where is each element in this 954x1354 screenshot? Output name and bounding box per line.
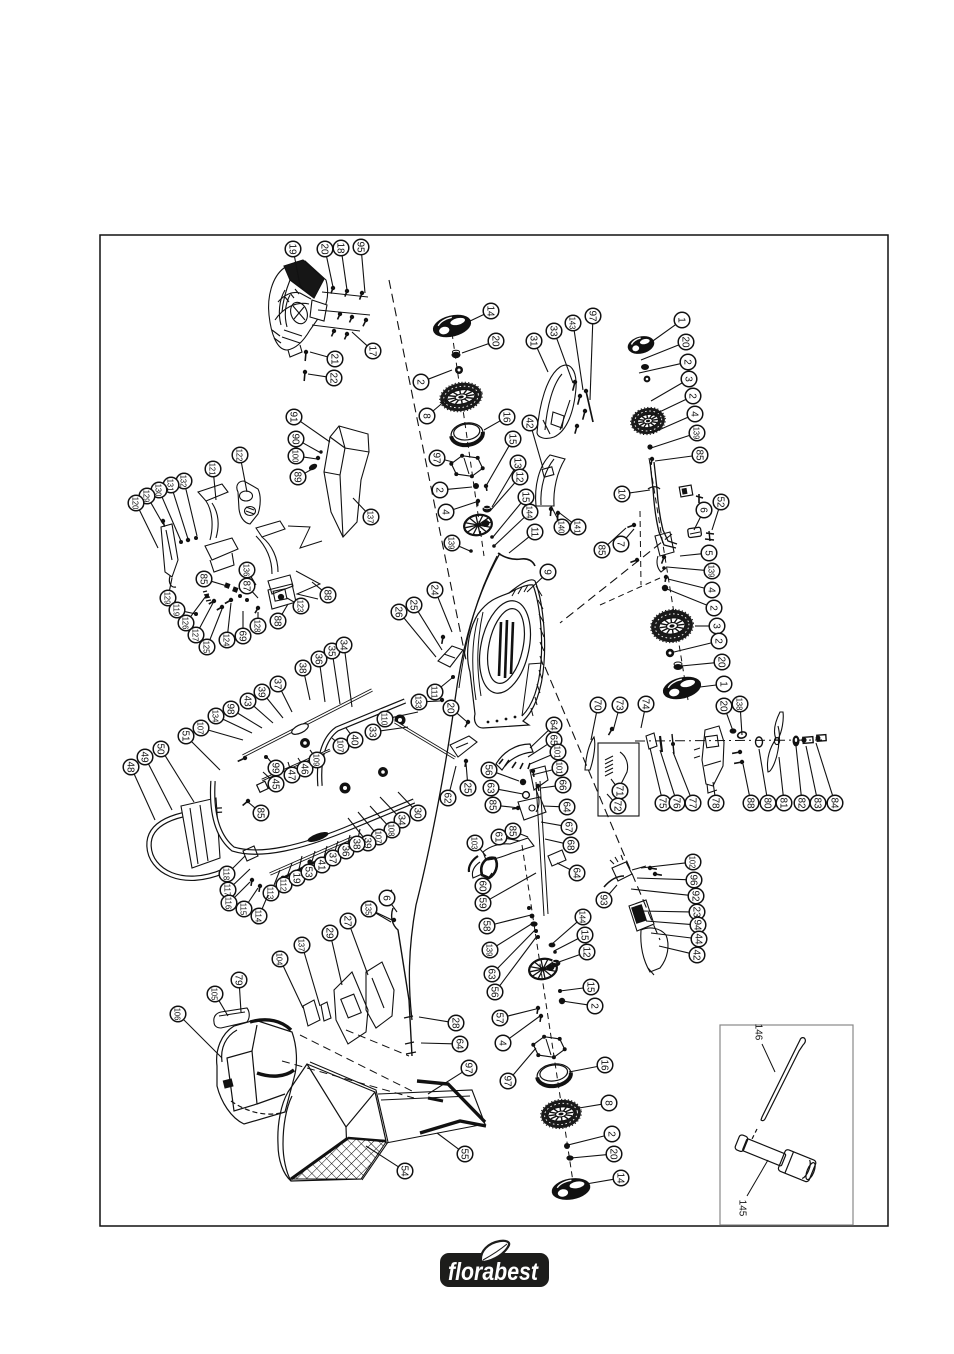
svg-text:139: 139: [446, 537, 456, 550]
svg-text:33: 33: [366, 726, 377, 738]
svg-text:78: 78: [709, 797, 720, 809]
svg-text:2: 2: [712, 638, 723, 644]
svg-text:14: 14: [484, 305, 495, 317]
svg-text:77: 77: [686, 797, 697, 809]
svg-text:12: 12: [580, 946, 591, 958]
svg-text:16: 16: [598, 1059, 609, 1071]
svg-text:38: 38: [296, 662, 307, 674]
svg-text:6: 6: [380, 895, 391, 901]
svg-text:29: 29: [323, 927, 334, 939]
svg-text:67: 67: [562, 821, 573, 833]
svg-text:3: 3: [682, 376, 693, 382]
svg-text:97: 97: [501, 1075, 512, 1087]
svg-text:133: 133: [413, 696, 423, 709]
svg-text:40: 40: [348, 734, 359, 746]
svg-text:90: 90: [289, 433, 300, 445]
svg-text:75: 75: [656, 797, 667, 809]
svg-text:144: 144: [524, 506, 534, 519]
svg-text:109: 109: [311, 754, 321, 767]
svg-text:71: 71: [613, 785, 624, 797]
svg-text:81: 81: [777, 797, 788, 809]
svg-text:121: 121: [207, 463, 217, 476]
svg-text:85: 85: [254, 807, 265, 819]
svg-text:3: 3: [710, 623, 721, 629]
svg-text:122: 122: [234, 449, 244, 462]
svg-text:20: 20: [679, 336, 690, 348]
svg-text:73: 73: [613, 699, 624, 711]
svg-text:84: 84: [828, 797, 839, 809]
svg-text:85: 85: [693, 449, 704, 461]
svg-text:1: 1: [675, 317, 686, 323]
svg-text:143: 143: [567, 317, 577, 330]
svg-text:28: 28: [449, 1017, 460, 1029]
svg-text:125: 125: [201, 641, 211, 654]
svg-text:60: 60: [476, 880, 487, 892]
svg-text:107: 107: [195, 722, 205, 735]
svg-text:50: 50: [154, 743, 165, 755]
svg-text:83: 83: [811, 797, 822, 809]
svg-text:105: 105: [209, 988, 219, 1001]
svg-text:62: 62: [441, 792, 452, 804]
svg-text:19: 19: [290, 872, 301, 884]
svg-text:106: 106: [172, 1008, 182, 1021]
svg-text:39: 39: [255, 686, 266, 698]
svg-text:116: 116: [223, 897, 233, 910]
svg-text:13: 13: [511, 457, 522, 469]
svg-text:98: 98: [224, 703, 235, 715]
svg-text:104: 104: [274, 953, 284, 966]
svg-text:137: 137: [296, 939, 306, 952]
svg-text:72: 72: [611, 800, 622, 812]
svg-text:6: 6: [697, 507, 708, 513]
svg-text:145: 145: [737, 1200, 748, 1217]
svg-text:53: 53: [302, 866, 313, 878]
svg-text:117: 117: [222, 884, 232, 897]
svg-text:89: 89: [291, 471, 302, 483]
svg-text:4: 4: [688, 411, 699, 417]
svg-text:64: 64: [560, 801, 571, 813]
svg-text:14: 14: [614, 1172, 625, 1184]
svg-text:146: 146: [753, 1024, 764, 1041]
svg-text:15: 15: [506, 433, 517, 445]
svg-text:20: 20: [318, 243, 329, 255]
svg-text:56: 56: [482, 764, 493, 776]
svg-text:88: 88: [321, 589, 332, 601]
svg-text:119: 119: [171, 604, 181, 617]
svg-text:102: 102: [687, 856, 697, 869]
svg-text:107: 107: [335, 740, 345, 753]
svg-text:37: 37: [326, 852, 337, 864]
svg-text:4: 4: [705, 587, 716, 593]
svg-text:115: 115: [238, 903, 248, 916]
svg-text:58: 58: [480, 920, 491, 932]
svg-text:97: 97: [430, 452, 441, 464]
svg-text:64: 64: [547, 719, 558, 731]
svg-text:38: 38: [350, 838, 361, 850]
svg-text:94: 94: [691, 919, 702, 931]
svg-text:36: 36: [312, 653, 323, 665]
svg-text:15: 15: [584, 981, 595, 993]
svg-text:139: 139: [484, 944, 494, 957]
svg-text:20: 20: [489, 335, 500, 347]
svg-text:82: 82: [795, 797, 806, 809]
svg-text:36: 36: [339, 845, 350, 857]
svg-text:79: 79: [232, 974, 243, 986]
svg-text:110: 110: [379, 713, 389, 726]
svg-text:99: 99: [269, 762, 280, 774]
svg-text:96: 96: [687, 874, 698, 886]
svg-text:41: 41: [315, 859, 326, 871]
svg-text:30: 30: [411, 807, 422, 819]
svg-text:20: 20: [717, 700, 728, 712]
svg-text:20: 20: [715, 656, 726, 668]
svg-text:70: 70: [591, 699, 602, 711]
svg-text:48: 48: [124, 761, 135, 773]
svg-text:45: 45: [269, 778, 280, 790]
svg-text:33: 33: [547, 325, 558, 337]
svg-text:22: 22: [327, 372, 338, 384]
svg-text:21: 21: [328, 353, 339, 365]
svg-text:59: 59: [476, 897, 487, 909]
svg-text:27: 27: [341, 915, 352, 927]
svg-text:1: 1: [717, 681, 728, 687]
svg-text:118: 118: [221, 868, 231, 881]
svg-text:112: 112: [278, 879, 288, 892]
svg-text:140: 140: [556, 521, 566, 534]
svg-text:128: 128: [252, 620, 262, 633]
svg-text:25: 25: [407, 599, 418, 611]
svg-text:46: 46: [298, 763, 309, 775]
svg-text:127: 127: [190, 629, 200, 642]
svg-text:114: 114: [253, 910, 263, 923]
svg-text:95: 95: [354, 241, 365, 253]
svg-text:35: 35: [325, 645, 336, 657]
svg-text:138: 138: [734, 698, 744, 711]
svg-text:64: 64: [453, 1038, 464, 1050]
svg-text:92: 92: [689, 890, 700, 902]
svg-text:4: 4: [439, 509, 450, 515]
svg-text:139: 139: [706, 565, 716, 578]
svg-text:23: 23: [690, 906, 701, 918]
svg-text:55: 55: [458, 1148, 469, 1160]
svg-text:42: 42: [523, 417, 534, 429]
svg-text:54: 54: [398, 1165, 409, 1177]
svg-text:68: 68: [564, 839, 575, 851]
svg-text:85: 85: [197, 573, 208, 585]
svg-text:69: 69: [236, 630, 247, 642]
svg-text:144: 144: [577, 911, 587, 924]
svg-text:18: 18: [334, 242, 345, 254]
svg-text:34: 34: [337, 639, 348, 651]
svg-text:8: 8: [420, 413, 431, 419]
svg-text:64: 64: [570, 867, 581, 879]
svg-text:85: 85: [595, 544, 606, 556]
svg-text:florabest: florabest: [448, 1258, 539, 1286]
svg-text:8: 8: [602, 1100, 613, 1106]
svg-text:2: 2: [707, 605, 718, 611]
svg-text:2: 2: [588, 1003, 599, 1009]
svg-text:5: 5: [702, 550, 713, 556]
svg-text:2: 2: [414, 379, 425, 385]
svg-text:141: 141: [572, 521, 582, 534]
svg-text:37: 37: [271, 678, 282, 690]
svg-text:134: 134: [210, 710, 220, 723]
svg-text:31: 31: [527, 335, 538, 347]
svg-text:19: 19: [286, 243, 297, 255]
svg-text:24: 24: [428, 584, 439, 596]
svg-text:57: 57: [493, 1012, 504, 1024]
svg-text:120: 120: [130, 497, 140, 510]
svg-text:88: 88: [271, 615, 282, 627]
svg-text:2: 2: [681, 359, 692, 365]
svg-text:47: 47: [285, 769, 296, 781]
svg-text:7: 7: [614, 541, 625, 547]
svg-text:124: 124: [221, 634, 231, 647]
svg-text:101: 101: [554, 762, 564, 775]
svg-text:44: 44: [692, 933, 703, 945]
svg-text:88: 88: [744, 797, 755, 809]
svg-text:49: 49: [138, 751, 149, 763]
svg-text:111: 111: [429, 686, 439, 699]
svg-text:20: 20: [607, 1148, 618, 1160]
svg-text:63: 63: [484, 782, 495, 794]
svg-text:97: 97: [586, 310, 597, 322]
svg-text:15: 15: [519, 491, 530, 503]
svg-text:132: 132: [178, 475, 188, 488]
svg-text:126: 126: [180, 617, 190, 630]
svg-text:129: 129: [162, 592, 172, 605]
svg-text:20: 20: [444, 702, 455, 714]
svg-text:85: 85: [506, 825, 517, 837]
svg-text:103: 103: [469, 837, 479, 850]
svg-text:139: 139: [691, 427, 701, 440]
svg-text:91: 91: [287, 411, 298, 423]
svg-text:85: 85: [486, 799, 497, 811]
svg-text:101: 101: [552, 746, 562, 759]
svg-text:15: 15: [578, 929, 589, 941]
svg-text:2: 2: [605, 1131, 616, 1137]
svg-text:51: 51: [179, 730, 190, 742]
svg-text:61: 61: [492, 831, 503, 843]
svg-text:123: 123: [295, 600, 305, 613]
svg-text:136: 136: [241, 564, 251, 577]
svg-text:17: 17: [366, 345, 377, 357]
svg-text:42: 42: [690, 949, 701, 961]
svg-text:76: 76: [670, 797, 681, 809]
svg-text:43: 43: [241, 695, 252, 707]
svg-text:52: 52: [714, 496, 725, 508]
svg-text:4: 4: [496, 1040, 507, 1046]
svg-text:9: 9: [541, 569, 552, 575]
svg-text:16: 16: [500, 411, 511, 423]
svg-text:93: 93: [597, 894, 608, 906]
svg-text:100: 100: [290, 450, 300, 463]
svg-text:10: 10: [615, 488, 626, 500]
svg-text:2: 2: [433, 487, 444, 493]
svg-text:135: 135: [363, 903, 373, 916]
svg-text:80: 80: [761, 797, 772, 809]
svg-text:12: 12: [513, 471, 524, 483]
svg-text:66: 66: [556, 779, 567, 791]
svg-text:63: 63: [485, 968, 496, 980]
svg-text:97: 97: [462, 1062, 473, 1074]
svg-text:74: 74: [639, 698, 650, 710]
svg-text:25: 25: [461, 782, 472, 794]
svg-text:137: 137: [365, 511, 375, 524]
svg-text:108: 108: [386, 824, 396, 837]
svg-text:56: 56: [488, 986, 499, 998]
svg-text:2: 2: [686, 393, 697, 399]
svg-text:87: 87: [240, 580, 251, 592]
svg-text:26: 26: [392, 606, 403, 618]
svg-text:11: 11: [528, 527, 539, 538]
